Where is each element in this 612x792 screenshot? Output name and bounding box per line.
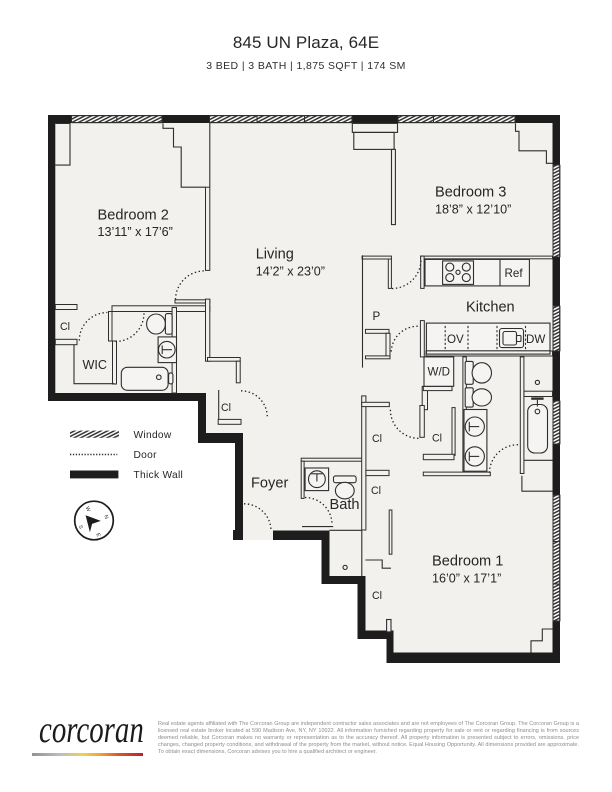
svg-text:16’0” x 17’1”: 16’0” x 17’1” bbox=[432, 572, 501, 586]
svg-text:Thick Wall: Thick Wall bbox=[134, 470, 184, 481]
svg-text:Window: Window bbox=[134, 430, 172, 441]
svg-text:N: N bbox=[102, 514, 109, 520]
svg-text:Door: Door bbox=[134, 450, 158, 461]
svg-text:Kitchen: Kitchen bbox=[466, 300, 515, 316]
svg-text:OV: OV bbox=[447, 333, 464, 346]
svg-text:E: E bbox=[94, 532, 101, 538]
svg-text:P: P bbox=[373, 310, 381, 323]
svg-text:Cl: Cl bbox=[221, 402, 231, 414]
svg-text:Foyer: Foyer bbox=[251, 476, 288, 492]
svg-text:Bath: Bath bbox=[330, 497, 360, 513]
svg-text:DW: DW bbox=[526, 333, 545, 346]
svg-text:Bedroom 2: Bedroom 2 bbox=[98, 208, 169, 224]
svg-text:18’8” x 12’10”: 18’8” x 12’10” bbox=[435, 203, 511, 217]
svg-text:Ref: Ref bbox=[505, 267, 524, 280]
svg-text:Cl: Cl bbox=[371, 485, 381, 497]
svg-text:WIC: WIC bbox=[83, 358, 107, 372]
svg-text:Cl: Cl bbox=[372, 590, 382, 602]
svg-text:13’11” x 17’6”: 13’11” x 17’6” bbox=[98, 225, 173, 239]
svg-text:Living: Living bbox=[256, 247, 294, 263]
svg-text:Cl: Cl bbox=[60, 321, 70, 333]
svg-text:Cl: Cl bbox=[372, 433, 382, 445]
svg-text:W: W bbox=[84, 506, 91, 513]
svg-text:Cl: Cl bbox=[432, 433, 442, 445]
svg-text:W/D: W/D bbox=[428, 366, 451, 379]
svg-text:Bedroom 3: Bedroom 3 bbox=[435, 185, 506, 201]
svg-text:14’2” x 23’0”: 14’2” x 23’0” bbox=[256, 265, 325, 279]
svg-text:Bedroom 1: Bedroom 1 bbox=[432, 554, 503, 570]
